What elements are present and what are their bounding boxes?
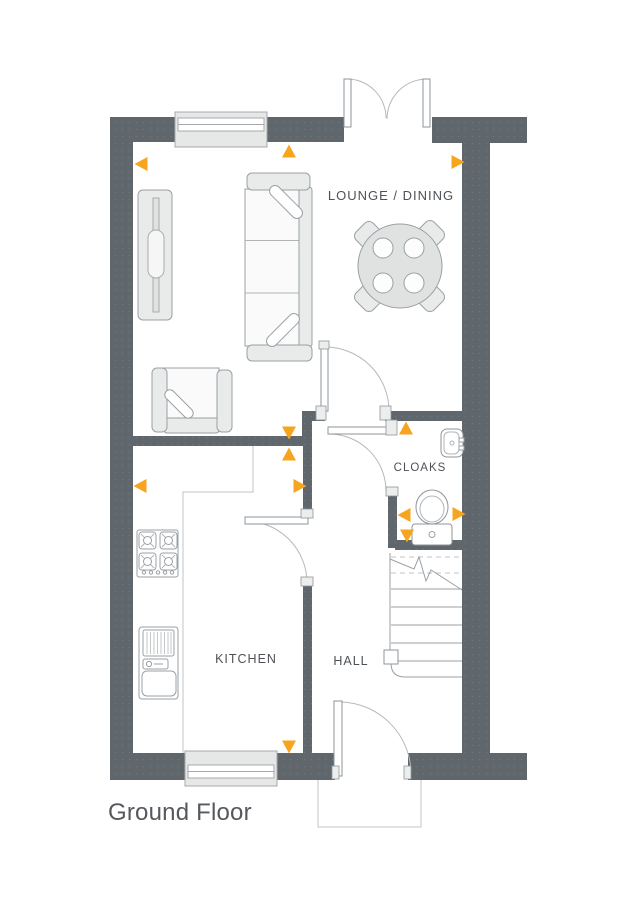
door-stop: [386, 420, 397, 435]
dimension-marker-left: [398, 508, 411, 522]
toilet: [412, 490, 452, 545]
hob-burner: [139, 553, 156, 570]
wall-north-b: [266, 117, 344, 142]
floorplan-page: LOUNGE / DINING CLOAKS KITCHEN HALL Grou…: [0, 0, 636, 900]
wall-hall-west-upper: [303, 446, 312, 517]
sofa: [245, 173, 312, 361]
ground-floor-plan: LOUNGE / DINING CLOAKS KITCHEN HALL Grou…: [0, 0, 636, 900]
hob-burner: [160, 532, 177, 549]
door-leaf: [245, 517, 308, 524]
sink-bowl: [142, 671, 176, 696]
door-swing-arc: [245, 521, 307, 583]
door-swing-arc: [387, 79, 427, 119]
room-label-hall: HALL: [333, 654, 368, 668]
wall-southeast-flange: [408, 753, 527, 780]
basin-tap: [459, 446, 464, 450]
dimension-marker-left: [135, 157, 148, 171]
page-title: Ground Floor: [108, 799, 252, 826]
armchair-armrest: [152, 368, 167, 432]
door-stop: [301, 577, 313, 586]
door-jambs: [301, 341, 411, 779]
armchair-armrest: [217, 370, 232, 432]
armchair-backrest: [164, 418, 219, 433]
basin-bowl: [444, 432, 459, 454]
stair-newel-post: [384, 650, 398, 664]
place-setting: [404, 238, 424, 258]
sideboard-handle: [148, 230, 164, 278]
front-door: [334, 701, 411, 776]
wall-south-a: [110, 753, 186, 780]
cloaks-door: [328, 427, 390, 491]
sink-drainer: [143, 630, 174, 656]
door-leaf: [344, 79, 351, 127]
room-label-kitchen: KITCHEN: [215, 652, 277, 666]
door-leaf: [328, 427, 390, 434]
kitchen-door: [245, 517, 308, 583]
door-stop: [319, 341, 329, 349]
place-setting: [404, 273, 424, 293]
place-setting: [373, 273, 393, 293]
kitchen-sink-unit: [139, 627, 178, 699]
door-swing-arc: [347, 79, 386, 118]
sideboard: [138, 190, 172, 320]
dimension-marker-up: [399, 422, 413, 435]
dimension-marker-left: [134, 479, 147, 493]
wall-northeast-flange: [432, 117, 527, 143]
wall-north-a: [110, 117, 176, 142]
door-swing-arc: [329, 434, 386, 491]
door-leaf: [334, 701, 342, 776]
door-stop: [332, 766, 339, 779]
door-stop: [301, 509, 313, 518]
room-label-cloaks: CLOAKS: [394, 462, 447, 474]
place-setting: [373, 238, 393, 258]
sofa-armrest: [247, 345, 312, 361]
door-leaf: [423, 79, 430, 127]
dimension-marker-up: [282, 145, 296, 158]
door-stop: [380, 406, 391, 420]
armchair: [152, 368, 232, 433]
wall-east: [462, 143, 490, 753]
wash-basin: [441, 429, 464, 457]
hob-burner: [139, 532, 156, 549]
dimension-marker-up: [282, 448, 296, 461]
door-stop: [386, 487, 398, 496]
window-north: [175, 112, 267, 147]
toilet-flush-button: [429, 532, 435, 538]
room-label-lounge-dining: LOUNGE / DINING: [328, 188, 454, 203]
porch-outline: [318, 780, 421, 827]
stair-handrail-curve: [391, 663, 462, 677]
door-stop: [404, 766, 411, 779]
kitchen-worktop-edge: [183, 446, 253, 753]
dining-table: [358, 224, 442, 308]
dining-set: [352, 218, 447, 314]
wall-cloaks-north: [385, 411, 462, 421]
basin-tap: [459, 438, 464, 442]
toilet-bowl: [416, 490, 448, 524]
french-doors: [344, 79, 430, 127]
wall-kitchen-divider: [133, 436, 312, 446]
door-swing-arc: [325, 347, 389, 411]
wall-south-b: [277, 753, 335, 780]
door-stop: [316, 406, 326, 420]
wall-cloaks-west: [388, 492, 397, 548]
hob-burner: [160, 553, 177, 570]
dimension-marker-down: [282, 741, 296, 754]
hob: [137, 530, 178, 577]
window-south: [185, 751, 277, 786]
staircase: [384, 553, 462, 677]
lounge-hall-door: [321, 347, 389, 411]
door-leaf: [321, 347, 328, 411]
wall-hall-west-lower: [303, 585, 312, 753]
door-swing-arc: [340, 702, 411, 773]
wall-west: [110, 117, 133, 780]
